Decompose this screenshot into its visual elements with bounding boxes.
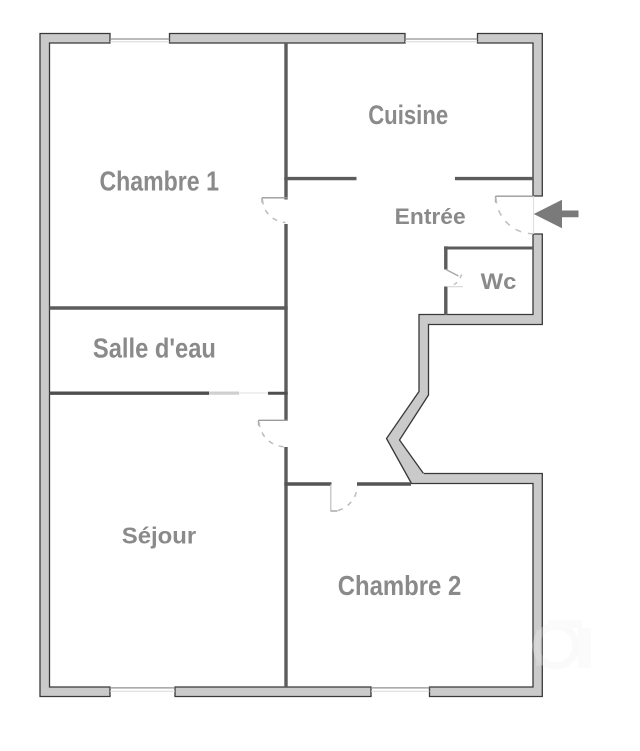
svg-text:Séjour: Séjour (122, 523, 196, 549)
svg-text:Salle d'eau: Salle d'eau (93, 332, 216, 363)
svg-text:Chambre 1: Chambre 1 (99, 166, 219, 197)
svg-text:Entrée: Entrée (395, 204, 466, 229)
svg-text:Chambre 2: Chambre 2 (338, 570, 462, 601)
svg-text:Cuisine: Cuisine (368, 100, 448, 130)
svg-text:Wc: Wc (481, 269, 517, 294)
